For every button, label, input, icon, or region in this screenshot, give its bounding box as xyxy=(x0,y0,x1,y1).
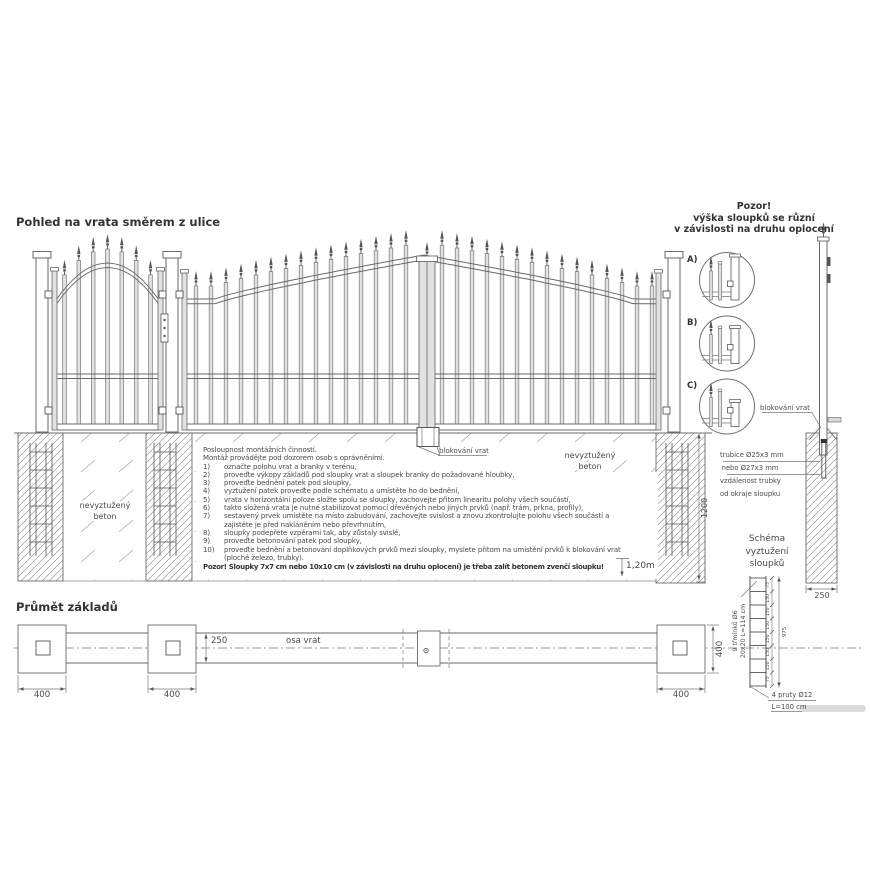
detail-bar xyxy=(710,335,713,364)
post-plan-square xyxy=(673,641,687,655)
gate-block-catch xyxy=(417,428,439,447)
block-width-dim: 250 xyxy=(808,591,836,600)
detail-post-cap xyxy=(730,254,741,257)
finial-spear-icon xyxy=(620,267,623,276)
finial-spear-icon xyxy=(269,257,272,266)
gate-bar xyxy=(590,275,594,424)
finial-ball xyxy=(576,266,579,269)
hinge-icon xyxy=(159,407,166,414)
finial-ball xyxy=(63,269,66,272)
wicket-bar xyxy=(149,275,153,424)
detail-hinge-icon xyxy=(728,281,734,287)
gate-bar xyxy=(344,256,348,424)
finial-ball xyxy=(456,242,459,245)
detail-bar xyxy=(719,264,722,300)
post-footing-hatch xyxy=(146,433,192,581)
stile-cap xyxy=(51,268,59,272)
detail-bar-cap xyxy=(718,262,722,264)
finial-spear-icon xyxy=(605,264,608,273)
step-number: 4) xyxy=(203,487,224,495)
finial-spear-icon xyxy=(635,271,638,280)
fence-post xyxy=(668,258,680,432)
finial-ball xyxy=(501,251,504,254)
lock-dot xyxy=(163,319,165,321)
finial-spear-icon xyxy=(590,260,593,269)
finial-spear-icon xyxy=(106,234,109,243)
instruction-step: 5)vrata v horizontální poloze složte spo… xyxy=(203,496,633,504)
concrete-warning: Pozor! Sloupky 7x7 cm nebo 10x10 cm (v z… xyxy=(203,563,604,571)
center-cap xyxy=(417,256,438,262)
gate-bar xyxy=(194,286,198,424)
schema-seg-dim: 150 xyxy=(765,607,771,616)
gate-bar xyxy=(530,262,534,424)
finial-spear-icon xyxy=(545,250,548,258)
plan-title: Průmět základů xyxy=(16,600,118,614)
gate-bar xyxy=(560,268,564,424)
label-line: nevyztužený xyxy=(564,451,617,460)
step-number: 5) xyxy=(203,496,224,504)
step-text: vrata v horizontální poloze složte spolu… xyxy=(224,496,633,504)
post-footing-hatch xyxy=(656,433,705,583)
detail-hinge-icon xyxy=(728,345,734,351)
notice-line1: Pozor! xyxy=(648,201,860,213)
detail-circle xyxy=(700,379,755,434)
footing-dim-right: 400 xyxy=(659,690,703,700)
gate-bar xyxy=(209,286,213,424)
detail-label-b: B) xyxy=(687,318,697,328)
plan-dim-400-vert: 400 xyxy=(715,641,725,657)
finial-ball xyxy=(390,242,393,245)
gate-bar xyxy=(239,279,243,425)
dim-arrow xyxy=(711,626,714,631)
post-plan-square xyxy=(36,641,50,655)
gate-bar xyxy=(650,286,654,424)
step-number: 6) xyxy=(203,504,224,512)
step-text: sloupky podepřete vzpěrami tak, aby zůst… xyxy=(224,529,633,537)
gate-bar xyxy=(545,265,549,424)
schema-title: Schéma vyztužení sloupků xyxy=(736,533,798,571)
gate-bar xyxy=(605,279,609,425)
wicket-bar xyxy=(63,275,67,424)
instruction-step: 2)proveďte výkopy základů pod sloupky vr… xyxy=(203,471,633,479)
hinge-icon xyxy=(159,291,166,298)
finial-spear-icon xyxy=(135,246,138,255)
step-number: 7) xyxy=(203,512,224,529)
finial-spear-icon xyxy=(500,241,503,250)
detail-post xyxy=(731,403,739,427)
finial-spear-icon xyxy=(359,239,362,248)
instruction-step: 3)proveďte bednění patek pod sloupky, xyxy=(203,479,633,487)
lock-dot xyxy=(163,335,165,337)
post-cap xyxy=(163,252,181,259)
schema-seg-dim: 150 xyxy=(765,661,771,670)
post-cap xyxy=(665,252,683,259)
schema-seg-dim: 150 xyxy=(765,594,771,603)
finial-spear-icon xyxy=(344,241,347,250)
hinge-icon xyxy=(663,407,670,414)
unreinforced-concrete-label-left: nevyztužený beton xyxy=(68,501,142,522)
instruction-step: 6)takto složená vrata je nutné stabilizo… xyxy=(203,504,633,512)
finial-spear-icon xyxy=(299,250,302,258)
schema-stirrups-size: 20x20 L=114 cm xyxy=(740,604,747,658)
finial-ball xyxy=(270,266,273,269)
gate-bar xyxy=(515,259,519,424)
finial-spear-icon xyxy=(120,237,123,246)
label-line: beton xyxy=(92,512,117,521)
block-pin xyxy=(828,418,841,423)
step-text: proveďte výkopy základů pod sloupky vrat… xyxy=(224,471,633,479)
post-footing-hatch xyxy=(18,433,63,581)
hinge-icon xyxy=(45,407,52,414)
finial-ball xyxy=(255,269,258,272)
wicket-bar xyxy=(77,261,81,425)
gate-bar xyxy=(575,272,579,424)
finial-ball xyxy=(636,280,639,283)
finial-ball xyxy=(471,245,474,248)
finial-ball xyxy=(710,329,713,332)
detail-post-cap xyxy=(730,400,741,403)
step-text: vyztužení patek proveďte podle schématu … xyxy=(224,487,633,495)
finial-ball xyxy=(405,239,408,242)
finial-ball xyxy=(330,253,333,256)
tube-cap xyxy=(821,439,827,443)
dim-arrow xyxy=(711,668,714,673)
finial-ball xyxy=(240,273,243,276)
step-number: 10) xyxy=(203,546,224,563)
finial-ball xyxy=(710,392,713,395)
schema-total-dim: 975 xyxy=(782,626,788,637)
gate-bar xyxy=(389,248,393,424)
finial-spear-icon xyxy=(515,244,518,253)
posts-height-notice: Pozor! výška sloupků se různí v závislos… xyxy=(648,201,860,236)
notice-line3: v závislosti na druhu oplocení xyxy=(648,224,860,236)
stile-cap xyxy=(157,268,165,272)
footing-dim-left: 400 xyxy=(20,690,64,700)
dim-arrow xyxy=(777,683,780,688)
instruction-step: 8)sloupky podepřete vzpěrami tak, aby zů… xyxy=(203,529,633,537)
drawing-page: 1200 400 75 150 150 150 150 150 150 75 9… xyxy=(0,0,870,870)
finial-spear-icon xyxy=(575,257,578,266)
finial-ball xyxy=(606,273,609,276)
finial-ball xyxy=(149,269,152,272)
gate-bar xyxy=(470,251,474,424)
tube-note-line3: vzdálenost trubky xyxy=(720,477,780,485)
unreinforced-concrete-label-right: nevyztužený beton xyxy=(558,451,622,472)
label-line: nevyztužený xyxy=(79,501,132,510)
step-text: proveďte bednění patek pod sloupky, xyxy=(224,479,633,487)
step-number: 1) xyxy=(203,463,224,471)
hinge-pin-icon xyxy=(827,257,831,266)
technical-drawing-svg: 1200 400 75 150 150 150 150 150 150 75 9… xyxy=(0,0,870,870)
finial-ball xyxy=(360,248,363,251)
finial-spear-icon xyxy=(224,267,227,276)
finial-ball xyxy=(225,276,228,279)
gate-bars-layer xyxy=(63,230,654,424)
frame-layer xyxy=(33,252,683,433)
gate-block-label-side: blokování vrat xyxy=(760,404,810,412)
gate-bar xyxy=(329,259,333,424)
gate-bar xyxy=(224,282,228,424)
finial-spear-icon xyxy=(374,236,377,245)
gate-stile xyxy=(656,272,661,430)
finial-ball xyxy=(516,253,519,256)
gate-block-label: blokování vrat xyxy=(439,447,489,455)
detail-bar-cap xyxy=(718,326,722,328)
step-text: sestavený prvek umístěte na místo zabudo… xyxy=(224,512,633,529)
stile-cap xyxy=(655,270,663,274)
footing-dim-mid: 400 xyxy=(150,690,194,700)
schema-title-line: vyztužení xyxy=(736,546,798,559)
schema-stirrups-label: 9 třmínků Ø6 xyxy=(731,610,739,651)
gate-bar xyxy=(314,262,318,424)
wicket-bar xyxy=(120,252,124,424)
finial-spear-icon xyxy=(650,271,653,280)
hinge-icon xyxy=(176,291,183,298)
finial-ball xyxy=(77,255,80,258)
center-block-plan xyxy=(418,631,441,666)
wicket-bar xyxy=(106,249,110,424)
finial-ball xyxy=(315,256,318,259)
gate-bar xyxy=(635,286,639,424)
step-number: 3) xyxy=(203,479,224,487)
block-pin-dot xyxy=(425,650,426,651)
strip-width-dim: 250 xyxy=(211,636,227,646)
finial-ball xyxy=(210,280,213,283)
finial-spear-icon xyxy=(470,236,473,245)
finial-spear-icon xyxy=(485,239,488,248)
schema-seg-dim: 75 xyxy=(765,582,771,588)
gate-bar xyxy=(269,272,273,424)
detail-hinge-icon xyxy=(728,408,734,414)
detail-bar xyxy=(719,329,722,364)
side-view-post xyxy=(820,240,828,455)
finial-spear-icon xyxy=(209,271,212,280)
finial-ball xyxy=(621,276,624,279)
instruction-step: 9)proveďte betonování patek pod sloupky, xyxy=(203,537,633,545)
finial-spear-icon xyxy=(239,264,242,273)
fence-post xyxy=(36,258,48,432)
stile-cap xyxy=(181,270,189,274)
gate-bar xyxy=(455,248,459,424)
finial-spear-icon xyxy=(404,230,407,239)
gate-bar xyxy=(620,282,624,424)
step-number: 2) xyxy=(203,471,224,479)
hinge-icon xyxy=(176,407,183,414)
hinge-icon xyxy=(45,291,52,298)
finial-spear-icon xyxy=(560,253,563,262)
finial-spear-icon xyxy=(284,253,287,262)
finial-ball xyxy=(546,259,549,262)
detail-bar xyxy=(719,392,722,427)
finial-ball xyxy=(710,265,713,268)
step-text: proveďte bednění a betonování doplňkovýc… xyxy=(224,546,633,563)
dim-arrow xyxy=(777,577,780,582)
detail-bar-cap xyxy=(718,389,722,391)
tube-note-line1: trubice Ø25x3 mm xyxy=(720,451,780,459)
schema-seg-dim: 150 xyxy=(765,648,771,657)
dim-1200-label: 1200 xyxy=(700,498,709,518)
finial-ball xyxy=(426,251,429,254)
instruction-step: 7)sestavený prvek umístěte na místo zabu… xyxy=(203,512,633,529)
axis-label: osa vrat xyxy=(286,636,321,646)
finial-ball xyxy=(195,280,198,283)
step-text: proveďte betonování patek pod sloupky, xyxy=(224,537,633,545)
tube-note-line4: od okraje sloupku xyxy=(720,490,780,498)
finial-ball xyxy=(120,246,123,249)
finial-spear-icon xyxy=(63,260,66,269)
finial-ball xyxy=(285,263,288,266)
finial-ball xyxy=(486,248,489,251)
rods-length: L=100 cm xyxy=(766,703,812,711)
step-number: 9) xyxy=(203,537,224,545)
schema-title-line: Schéma xyxy=(736,533,798,546)
finial-spear-icon xyxy=(389,233,392,242)
detail-bar xyxy=(710,398,713,427)
finial-ball xyxy=(345,251,348,254)
finial-spear-icon xyxy=(329,244,332,253)
finial-ball xyxy=(300,259,303,262)
detail-post-cap xyxy=(730,326,741,329)
finial-ball xyxy=(561,263,564,266)
finial-ball xyxy=(591,269,594,272)
post-cap xyxy=(33,252,51,259)
wicket-stile xyxy=(52,270,57,430)
detail-label-c: C) xyxy=(687,381,697,391)
schema-seg-dim: 75 xyxy=(765,676,771,682)
leader-line xyxy=(741,581,757,597)
gate-bar xyxy=(500,256,504,424)
side-post-cap xyxy=(818,237,830,241)
finial-ball xyxy=(651,280,654,283)
step-text: takto složená vrata je nutné stabilizova… xyxy=(224,504,633,512)
fence-post xyxy=(166,258,178,432)
instruction-step: 10)proveďte bednění a betonování doplňko… xyxy=(203,546,633,563)
schema-seg-dim: 150 xyxy=(765,621,771,630)
finial-spear-icon xyxy=(455,233,458,242)
detail-circle xyxy=(700,316,755,371)
gate-bar xyxy=(404,245,408,424)
detail-bar xyxy=(710,271,713,300)
gate-bar xyxy=(440,245,444,424)
finial-ball xyxy=(441,239,444,242)
finial-ball xyxy=(92,246,95,249)
tube-note-line2: nebo Ø27x3 mm xyxy=(720,464,780,472)
finial-spear-icon xyxy=(77,246,80,255)
finial-spear-icon xyxy=(254,260,257,269)
detail-label-a: A) xyxy=(687,255,697,265)
rods-label: 4 pruty Ø12 xyxy=(766,691,818,699)
finial-spear-icon xyxy=(440,230,443,239)
wicket-bar xyxy=(91,252,95,424)
view-title: Pohled na vrata směrem z ulice xyxy=(16,215,220,229)
finial-spear-icon xyxy=(149,260,152,269)
gate-bar xyxy=(254,275,258,424)
detail-circle xyxy=(700,253,755,308)
finial-spear-icon xyxy=(92,237,95,246)
wicket-bar xyxy=(134,261,138,425)
finial-spear-icon xyxy=(194,271,197,280)
gate-bar xyxy=(359,254,363,424)
lock-dot xyxy=(163,327,165,329)
schema-seg-dim: 150 xyxy=(765,634,771,643)
finial-spear-icon xyxy=(314,247,317,256)
instruction-step: 4)vyztužení patek proveďte podle schémat… xyxy=(203,487,633,495)
hinge-pin-icon xyxy=(827,274,831,283)
finial-ball xyxy=(531,256,534,259)
finial-ball xyxy=(135,255,138,258)
hinge-icon xyxy=(663,291,670,298)
label-line: beton xyxy=(577,462,602,471)
detail-post xyxy=(731,257,739,300)
gate-bar xyxy=(374,251,378,424)
finial-ball xyxy=(375,245,378,248)
step-number: 8) xyxy=(203,529,224,537)
dim-arrow xyxy=(204,658,207,663)
gate-bar xyxy=(485,254,489,424)
finial-spear-icon xyxy=(425,242,428,251)
dim-arrow xyxy=(204,634,207,639)
depth-label: 1,20m xyxy=(626,561,655,571)
schema-title-line: sloupků xyxy=(736,558,798,571)
finial-spear-icon xyxy=(530,247,533,256)
post-plan-square xyxy=(166,641,180,655)
notice-line2: výška sloupků se různí xyxy=(648,213,860,225)
gate-bar xyxy=(299,265,303,424)
gate-bar xyxy=(284,268,288,424)
finial-ball xyxy=(106,243,109,246)
